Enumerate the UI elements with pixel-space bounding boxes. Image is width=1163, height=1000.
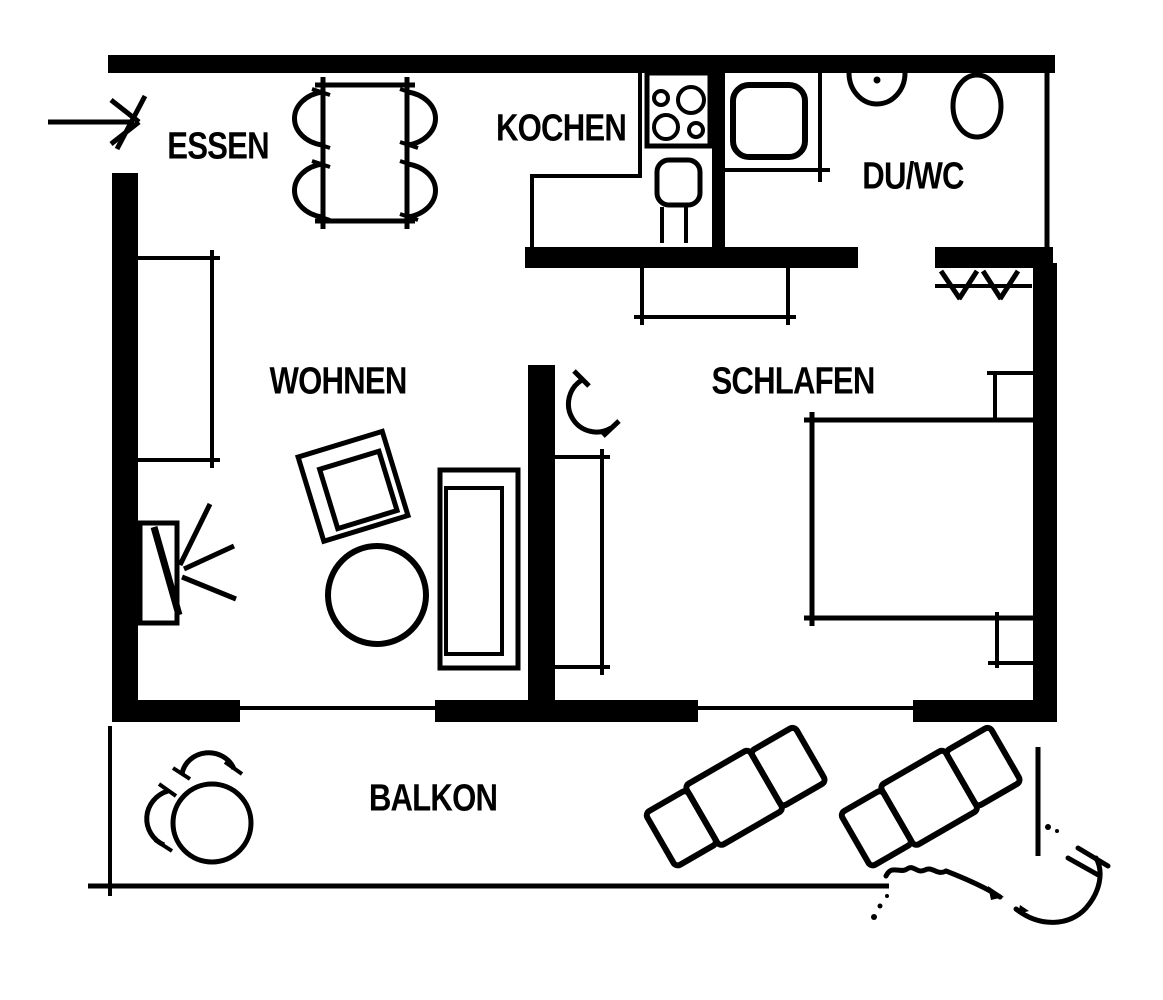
dresser-passage: [634, 268, 796, 325]
shower-tray: [722, 73, 830, 182]
door-swing-schlafen: [568, 371, 619, 436]
dining-table: [315, 77, 415, 229]
clothes-rail-hatch: [935, 271, 1032, 299]
sun-lounger-1: [643, 724, 828, 871]
washbasin-drain: [874, 77, 881, 84]
hand-drawn-flourish: [871, 824, 1108, 922]
sun-lounger-2: [838, 724, 1023, 871]
entrance-arrow: [48, 96, 145, 149]
chair-right-bottom: [408, 164, 435, 217]
room-label-kochen: KOCHEN: [496, 108, 626, 151]
wall-bottom-middle: [435, 700, 698, 722]
room-label-wohnen: WOHNEN: [269, 361, 406, 404]
coffee-table: [328, 546, 426, 644]
tv-with-signal-rays: [140, 504, 236, 623]
wall-left: [112, 173, 138, 722]
double-bed: [804, 412, 1033, 626]
room-label-duwc: DU/WC: [862, 156, 963, 199]
wall-right: [1033, 263, 1057, 722]
wardrobe-schlafen: [555, 449, 610, 675]
balcony-chair-top: [173, 753, 242, 779]
chair-left-bottom: [295, 164, 322, 217]
floor-plan: ESSEN KOCHEN DU/WC WOHNEN SCHLAFEN BALKO…: [0, 0, 1163, 1000]
toilet: [953, 75, 1001, 137]
room-label-essen: ESSEN: [167, 126, 269, 169]
chair-left-top: [295, 92, 322, 145]
sink-unit: [657, 160, 700, 243]
cooktop: [647, 73, 710, 146]
room-label-schlafen: SCHLAFEN: [711, 361, 874, 404]
wall-bottom-left: [112, 700, 240, 722]
wall-kitchen-bath-divider: [712, 72, 725, 250]
dining-chairs: [295, 89, 436, 220]
sofa: [440, 470, 518, 668]
wall-bath-bottom: [935, 247, 1053, 268]
wall-wohnen-schlafen: [528, 365, 555, 703]
kitchen-counter: [532, 73, 640, 247]
chair-right-top: [408, 92, 435, 145]
washbasin: [849, 73, 905, 104]
armchair: [298, 431, 408, 541]
nightstand-top: [987, 373, 1033, 420]
signal-rays: [180, 504, 236, 599]
room-label-balkon: BALKON: [369, 778, 497, 821]
balcony-table: [173, 784, 251, 862]
burners: [654, 87, 704, 139]
wall-kitchen-bottom: [525, 247, 858, 268]
chair-ticks: [312, 89, 418, 220]
wall-top: [108, 55, 1055, 73]
sideboard-essen: [138, 250, 220, 468]
